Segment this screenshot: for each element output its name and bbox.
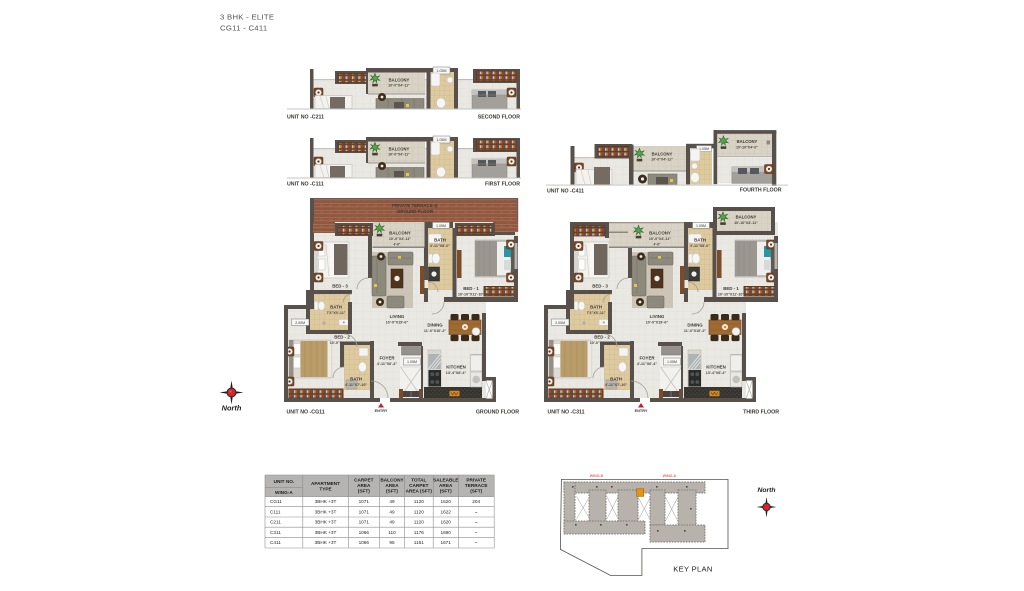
svg-text:SECOND FLOOR: SECOND FLOOR bbox=[478, 114, 521, 120]
svg-text:3BHK +3T: 3BHK +3T bbox=[315, 520, 337, 525]
svg-text:THIRD FLOOR: THIRD FLOOR bbox=[743, 409, 779, 415]
svg-text:4'-6": 4'-6" bbox=[394, 243, 401, 247]
svg-text:1620: 1620 bbox=[440, 520, 451, 525]
svg-text:1671: 1671 bbox=[440, 540, 451, 545]
svg-text:10'-0"X4'-11": 10'-0"X4'-11" bbox=[389, 237, 412, 241]
svg-text:49: 49 bbox=[389, 509, 395, 514]
svg-text:UNIT NO -CG11: UNIT NO -CG11 bbox=[287, 409, 325, 415]
svg-text:TOTAL: TOTAL bbox=[411, 478, 426, 483]
svg-text:APARTMENT: APARTMENT bbox=[311, 481, 340, 486]
svg-text:–: – bbox=[475, 520, 478, 525]
svg-text:AREA: AREA bbox=[439, 483, 453, 488]
svg-text:1120: 1120 bbox=[414, 499, 424, 504]
svg-text:3BHK +3T: 3BHK +3T bbox=[315, 530, 337, 535]
svg-text:10'-0"X4'-11": 10'-0"X4'-11" bbox=[651, 158, 673, 162]
svg-text:1071: 1071 bbox=[359, 520, 370, 525]
svg-text:C211: C211 bbox=[270, 520, 281, 525]
svg-text:UNIT NO -C311: UNIT NO -C311 bbox=[548, 409, 585, 415]
svg-text:CG11 - C411: CG11 - C411 bbox=[220, 23, 267, 32]
svg-text:C111: C111 bbox=[270, 509, 281, 514]
svg-text:CARPET: CARPET bbox=[409, 483, 428, 488]
svg-text:1.05M: 1.05M bbox=[699, 147, 709, 151]
svg-text:SALEABLE: SALEABLE bbox=[433, 478, 458, 483]
svg-text:CG11: CG11 bbox=[270, 499, 282, 504]
svg-text:1176: 1176 bbox=[414, 530, 424, 535]
svg-text:–: – bbox=[475, 530, 478, 535]
svg-text:BALCONY: BALCONY bbox=[652, 152, 673, 157]
svg-text:49: 49 bbox=[389, 520, 395, 525]
svg-text:10'-0"X4'-11": 10'-0"X4'-11" bbox=[649, 237, 672, 241]
svg-text:1620: 1620 bbox=[440, 499, 451, 504]
svg-text:10'-10"X4'-0": 10'-10"X4'-0" bbox=[736, 146, 758, 150]
svg-text:95: 95 bbox=[389, 540, 395, 545]
svg-text:110: 110 bbox=[388, 530, 396, 535]
svg-text:AREA: AREA bbox=[385, 483, 399, 488]
svg-text:BALCONY: BALCONY bbox=[649, 231, 671, 236]
svg-text:AREA (SFT): AREA (SFT) bbox=[406, 489, 433, 494]
svg-text:PRIVATE TERRACE @: PRIVATE TERRACE @ bbox=[392, 203, 439, 208]
svg-text:3 BHK - ELITE: 3 BHK - ELITE bbox=[220, 12, 274, 21]
svg-text:WING-A: WING-A bbox=[663, 474, 677, 478]
svg-text:(SFT): (SFT) bbox=[470, 489, 482, 494]
svg-text:North: North bbox=[222, 404, 242, 413]
svg-text:C411: C411 bbox=[270, 540, 281, 545]
svg-text:49: 49 bbox=[389, 499, 395, 504]
svg-text:FIRST FLOOR: FIRST FLOOR bbox=[485, 182, 520, 188]
svg-text:3BHK +3T: 3BHK +3T bbox=[315, 509, 337, 514]
svg-text:TYPE: TYPE bbox=[319, 487, 331, 492]
svg-text:GROUND FLOOR: GROUND FLOOR bbox=[397, 209, 434, 214]
svg-text:FOURTH FLOOR: FOURTH FLOOR bbox=[740, 188, 782, 194]
svg-text:4'-6": 4'-6" bbox=[654, 243, 661, 247]
svg-text:UNIT NO -C211: UNIT NO -C211 bbox=[287, 114, 324, 120]
svg-text:1066: 1066 bbox=[359, 530, 370, 535]
svg-text:WING-B: WING-B bbox=[590, 474, 604, 478]
svg-text:1071: 1071 bbox=[359, 509, 370, 514]
svg-text:PRIVATE: PRIVATE bbox=[466, 478, 486, 483]
svg-text:BALCONY: BALCONY bbox=[389, 231, 411, 236]
svg-text:AREA: AREA bbox=[357, 483, 371, 488]
svg-text:CARPET: CARPET bbox=[354, 478, 373, 483]
svg-text:BALCONY: BALCONY bbox=[380, 478, 404, 483]
svg-text:North: North bbox=[757, 487, 775, 494]
svg-text:1690: 1690 bbox=[440, 530, 451, 535]
svg-text:10'-10"X4'-11": 10'-10"X4'-11" bbox=[734, 221, 758, 225]
svg-text:3BHK +3T: 3BHK +3T bbox=[315, 540, 337, 545]
svg-text:UNIT NO -C411: UNIT NO -C411 bbox=[547, 189, 584, 195]
svg-text:BALCONY: BALCONY bbox=[736, 215, 757, 220]
svg-text:1161: 1161 bbox=[414, 540, 424, 545]
svg-text:UNIT NO -C111: UNIT NO -C111 bbox=[287, 182, 324, 188]
svg-text:–: – bbox=[475, 509, 478, 514]
svg-text:–: – bbox=[475, 540, 478, 545]
svg-text:KEY PLAN: KEY PLAN bbox=[673, 565, 712, 574]
svg-text:(SFT): (SFT) bbox=[358, 489, 370, 494]
svg-text:WING-A: WING-A bbox=[275, 490, 293, 495]
svg-text:GROUND FLOOR: GROUND FLOOR bbox=[476, 409, 519, 415]
svg-text:1622: 1622 bbox=[440, 509, 451, 514]
svg-text:1066: 1066 bbox=[359, 540, 370, 545]
svg-text:3BHK +3T: 3BHK +3T bbox=[315, 499, 337, 504]
svg-text:204: 204 bbox=[472, 499, 480, 504]
svg-text:UNIT NO.: UNIT NO. bbox=[274, 479, 295, 484]
svg-text:TERRACE: TERRACE bbox=[465, 483, 488, 488]
svg-text:1071: 1071 bbox=[359, 499, 370, 504]
svg-text:1120: 1120 bbox=[414, 509, 424, 514]
svg-text:1120: 1120 bbox=[414, 520, 424, 525]
svg-text:BALCONY: BALCONY bbox=[737, 139, 758, 144]
svg-text:(SFT): (SFT) bbox=[386, 489, 398, 494]
svg-text:(SFT): (SFT) bbox=[440, 489, 452, 494]
svg-text:C311: C311 bbox=[270, 530, 281, 535]
